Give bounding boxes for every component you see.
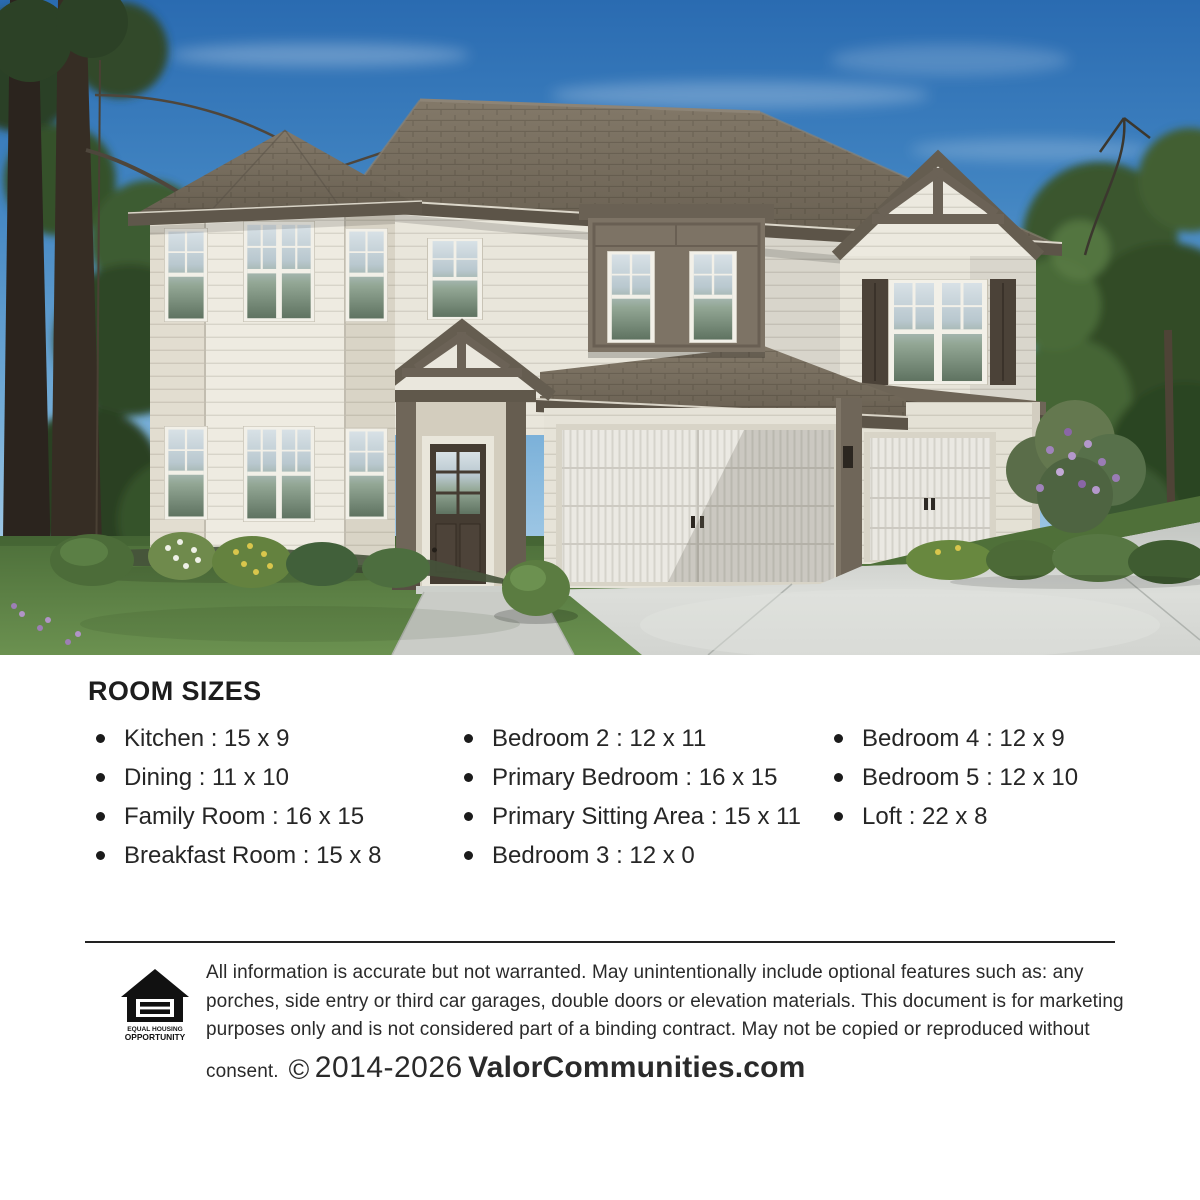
room-list-column-1: Kitchen : 15 x 9 Dining : 11 x 10 Family…: [96, 719, 464, 875]
house: [128, 100, 1062, 594]
footer: EQUAL HOUSING OPPORTUNITY All informatio…: [0, 941, 1200, 1091]
ball-bush-highlight: [510, 565, 546, 591]
room-item-label: Bedroom 4 : 12 x 9: [862, 725, 1065, 753]
brand-name: ValorCommunities.com: [468, 1051, 805, 1084]
bullet-icon: [464, 773, 473, 782]
bullet-icon: [464, 812, 473, 821]
dormer-window-2: [689, 251, 737, 343]
eho-text-line2: OPPORTUNITY: [125, 1032, 186, 1042]
room-item-label: Dining : 11 x 10: [124, 764, 289, 792]
room-item-loft: Loft : 22 x 8: [834, 797, 1200, 836]
disclaimer-paragraph: All information is accurate but not warr…: [206, 959, 1146, 1091]
room-item-label: Bedroom 5 : 12 x 10: [862, 764, 1078, 792]
house-photo: [0, 0, 1200, 655]
bay-upper-front-window: [243, 221, 315, 322]
coach-light: [843, 446, 853, 468]
bush-white-flowers: [148, 532, 216, 580]
right-bush-shadow: [950, 575, 1200, 589]
bullet-icon: [834, 734, 843, 743]
bullet-icon: [96, 812, 105, 821]
room-item-bedroom-5: Bedroom 5 : 12 x 10: [834, 758, 1200, 797]
room-item-label: Loft : 22 x 8: [862, 803, 987, 831]
room-item-primary-bedroom: Primary Bedroom : 16 x 15: [464, 758, 834, 797]
right-bush-2: [986, 540, 1058, 580]
room-item-breakfast-room: Breakfast Room : 15 x 8: [96, 836, 464, 875]
bullet-icon: [96, 851, 105, 860]
room-list-column-2: Bedroom 2 : 12 x 11 Primary Bedroom : 16…: [464, 719, 834, 875]
side-door-handle-1: [924, 498, 928, 510]
lawn-shade: [80, 606, 520, 642]
bullet-icon: [834, 773, 843, 782]
bay-upper-right-window: [345, 228, 388, 322]
eho-equals-top: [140, 1002, 170, 1007]
bullet-icon: [464, 734, 473, 743]
side-door-handle-2: [931, 498, 935, 510]
room-item-bedroom-2: Bedroom 2 : 12 x 11: [464, 719, 834, 758]
dormer-window-1: [607, 251, 655, 343]
bullet-icon: [96, 734, 105, 743]
bay-lower-front-window: [243, 426, 315, 522]
bay-lower-right-window: [345, 428, 388, 520]
upper-front-window: [427, 238, 483, 320]
room-item-label: Bedroom 2 : 12 x 11: [492, 725, 706, 753]
right-bush-1: [906, 540, 994, 580]
room-item-kitchen: Kitchen : 15 x 9: [96, 719, 464, 758]
room-item-bedroom-4: Bedroom 4 : 12 x 9: [834, 719, 1200, 758]
equal-housing-logo: EQUAL HOUSING OPPORTUNITY: [118, 967, 192, 1091]
bullet-icon: [834, 812, 843, 821]
bush-3: [362, 548, 430, 588]
corner-post-highlight: [836, 398, 841, 588]
room-item-family-room: Family Room : 16 x 15: [96, 797, 464, 836]
eho-equals-bottom: [140, 1009, 170, 1014]
dormer-cap: [579, 204, 774, 220]
room-item-label: Breakfast Room : 15 x 8: [124, 842, 381, 870]
room-item-label: Family Room : 16 x 15: [124, 803, 364, 831]
portico-band: [388, 390, 536, 402]
door-panel-right: [460, 524, 480, 572]
room-sizes-title: ROOM SIZES: [88, 676, 1200, 707]
equal-housing-icon: EQUAL HOUSING OPPORTUNITY: [118, 967, 192, 1045]
footer-row: EQUAL HOUSING OPPORTUNITY All informatio…: [0, 959, 1200, 1091]
room-item-primary-sitting-area: Primary Sitting Area : 15 x 11: [464, 797, 834, 836]
garage-handle-1: [691, 516, 695, 528]
room-item-label: Kitchen : 15 x 9: [124, 725, 289, 753]
room-list-column-3: Bedroom 4 : 12 x 9 Bedroom 5 : 12 x 10 L…: [834, 719, 1200, 875]
room-sizes-section: ROOM SIZES Kitchen : 15 x 9 Dining : 11 …: [0, 676, 1200, 875]
portico-post-right: [506, 402, 526, 588]
room-item-bedroom-3: Bedroom 3 : 12 x 0: [464, 836, 834, 875]
right-bush-flower-2: [955, 545, 961, 551]
dormer-shadow: [588, 352, 765, 358]
eho-field: [136, 999, 174, 1017]
copyright-years: 2014-2026: [315, 1051, 463, 1084]
house-rendering: [0, 0, 1200, 655]
bay-lower-left-window: [164, 426, 208, 520]
room-item-dining: Dining : 11 x 10: [96, 758, 464, 797]
room-item-label: Bedroom 3 : 12 x 0: [492, 842, 695, 870]
gable-window: [888, 279, 988, 385]
bush-2: [286, 542, 358, 586]
room-item-label: Primary Bedroom : 16 x 15: [492, 764, 777, 792]
footer-divider: [85, 941, 1115, 943]
room-item-label: Primary Sitting Area : 15 x 11: [492, 803, 801, 831]
flyer-page: ROOM SIZES Kitchen : 15 x 9 Dining : 11 …: [0, 0, 1200, 1200]
right-bush-flower-1: [935, 549, 941, 555]
bush-1-highlight: [60, 538, 108, 566]
bullet-icon: [464, 851, 473, 860]
room-sizes-columns: Kitchen : 15 x 9 Dining : 11 x 10 Family…: [96, 719, 1200, 875]
door-knob: [432, 548, 437, 553]
bay-upper-left-window: [164, 228, 208, 322]
eho-roof: [121, 969, 189, 997]
bullet-icon: [96, 773, 105, 782]
copyright-line: © 2014-2026 ValorCommunities.com: [289, 1061, 806, 1082]
copyright-icon: ©: [289, 1054, 310, 1085]
